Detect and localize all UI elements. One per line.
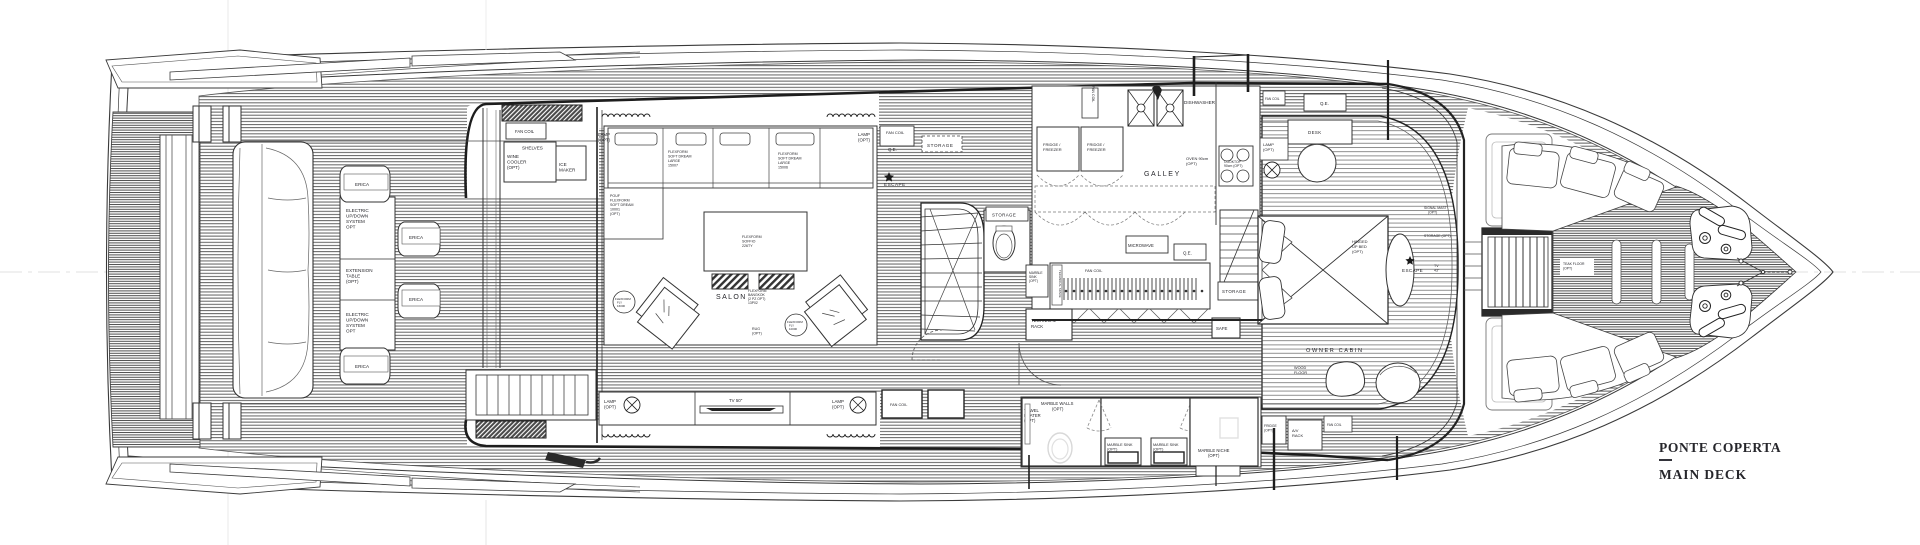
svg-text:TECHNICAL SPACE: TECHNICAL SPACE [1058,270,1062,298]
svg-text:ICE: ICE [559,162,567,167]
svg-text:FAN COIL: FAN COIL [890,403,907,407]
svg-text:16000: 16000 [617,304,625,308]
svg-text:FREEZER: FREEZER [1043,147,1062,152]
svg-text:Q.E.: Q.E. [888,147,897,152]
svg-text:UP/DOWN: UP/DOWN [346,214,368,219]
svg-text:TABLE: TABLE [346,274,360,279]
svg-text:FAN COIL: FAN COIL [1327,423,1342,427]
svg-text:MAIN DECK: MAIN DECK [1659,467,1747,482]
svg-text:(OPT): (OPT) [858,138,870,143]
svg-text:FRIDGE: FRIDGE [1264,424,1278,428]
svg-text:LAMP: LAMP [604,399,616,404]
svg-text:RUG: RUG [752,327,760,331]
svg-text:MAKER: MAKER [559,168,576,173]
svg-text:LARGE: LARGE [778,161,791,165]
svg-text:Q.E.: Q.E. [1320,101,1329,106]
svg-text:SOFT DREAM: SOFT DREAM [668,155,692,159]
svg-text:TEAK FLOOR: TEAK FLOOR [1563,262,1585,266]
svg-text:LARGE: LARGE [668,159,681,163]
svg-text:(OPT): (OPT) [1029,279,1038,283]
svg-text:43": 43" [1434,269,1440,273]
svg-text:15006: 15006 [778,166,788,170]
svg-text:LAMP: LAMP [832,399,844,404]
svg-text:90cm (OPT): 90cm (OPT) [1224,164,1242,168]
svg-text:(OPT): (OPT) [507,165,520,170]
svg-text:SHELVES: SHELVES [522,146,543,151]
svg-text:SYSTEM: SYSTEM [346,219,365,224]
svg-text:SALON: SALON [716,294,747,301]
svg-text:10000: 10000 [789,327,797,331]
svg-text:ERICA: ERICA [409,297,424,302]
svg-text:(OPT): (OPT) [598,138,610,143]
svg-text:SIGNAL MAST: SIGNAL MAST [1424,206,1447,210]
svg-text:WINE: WINE [507,154,519,159]
svg-text:(OPT): (OPT) [832,405,844,410]
svg-text:ELECTRIC: ELECTRIC [346,208,369,213]
svg-text:ELECTRIC: ELECTRIC [346,312,369,317]
svg-text:FLEXFORM: FLEXFORM [778,152,798,156]
svg-text:(OPT): (OPT) [1052,407,1064,412]
svg-text:FLEXFORM: FLEXFORM [742,235,762,239]
svg-text:(OPT): (OPT) [1208,453,1220,458]
svg-text:DESK: DESK [1308,130,1322,135]
svg-text:(OPT): (OPT) [752,332,762,336]
svg-text:LAMP: LAMP [858,132,870,137]
svg-text:13P02: 13P02 [748,301,758,305]
svg-text:POUF: POUF [610,194,621,198]
svg-text:(OPT): (OPT) [1352,249,1364,254]
svg-text:FREEZER: FREEZER [1087,147,1106,152]
svg-text:FLOOR: FLOOR [1294,371,1307,375]
svg-text:LAMP: LAMP [598,132,610,137]
svg-text:SOFT DREAM: SOFT DREAM [778,157,802,161]
svg-text:STORAGE (OPT): STORAGE (OPT) [1424,234,1451,238]
svg-text:GALLEY: GALLEY [1144,171,1181,178]
svg-text:OPT: OPT [346,329,356,334]
svg-text:OPT: OPT [346,225,356,230]
svg-text:(OPT): (OPT) [1263,147,1275,152]
svg-text:COOLER: COOLER [507,160,527,165]
svg-text:STORAGE: STORAGE [927,143,954,148]
svg-text:226TY: 226TY [742,244,753,248]
svg-text:MARBLE SINK: MARBLE SINK [1153,443,1179,447]
svg-text:PONTE COPERTA: PONTE COPERTA [1659,440,1781,455]
svg-text:SYSTEM: SYSTEM [346,323,365,328]
svg-text:UP/DOWN: UP/DOWN [346,318,368,323]
svg-text:FAN COIL: FAN COIL [1091,86,1095,102]
svg-text:FLEXFORM: FLEXFORM [610,199,630,203]
svg-text:(OPT): (OPT) [1563,267,1572,271]
svg-text:ESCAPE: ESCAPE [884,182,906,187]
svg-text:(OPT): (OPT) [610,212,620,216]
svg-text:MARBLE SINK: MARBLE SINK [1107,443,1133,447]
svg-text:TV 50": TV 50" [729,398,743,403]
svg-text:TV: TV [1434,264,1439,268]
svg-text:(OPT): (OPT) [1428,211,1437,215]
svg-text:(OPT): (OPT) [346,279,359,284]
svg-text:(OPT): (OPT) [1107,448,1118,452]
svg-text:FAN COIL: FAN COIL [886,130,905,135]
svg-text:STORAGE: STORAGE [992,213,1016,218]
svg-text:DISHWASHER: DISHWASHER [1184,100,1216,105]
svg-text:EXTENSION: EXTENSION [346,268,373,273]
svg-text:SOFT DREAM: SOFT DREAM [610,203,634,207]
svg-text:(OPT): (OPT) [1264,429,1273,433]
svg-text:ERICA: ERICA [355,182,370,187]
svg-text:Q.E.: Q.E. [1183,251,1192,256]
svg-text:WOOD: WOOD [1294,366,1306,370]
svg-text:15007: 15007 [668,164,678,168]
svg-text:ERICA: ERICA [409,235,424,240]
svg-text:MICROWAVE: MICROWAVE [1128,243,1154,248]
svg-text:OWNER CABIN: OWNER CABIN [1306,348,1364,354]
svg-text:ESCAPE: ESCAPE [1402,268,1423,273]
svg-text:FAN COIL: FAN COIL [1265,97,1280,101]
svg-text:10001: 10001 [610,208,620,212]
svg-text:RACK: RACK [1031,324,1043,329]
svg-text:FAN COIL: FAN COIL [515,129,535,134]
svg-text:(OPT): (OPT) [1186,161,1198,166]
svg-text:ERICA: ERICA [355,364,370,369]
svg-text:(OPT): (OPT) [604,405,616,410]
svg-text:FAN COIL: FAN COIL [1085,269,1102,273]
svg-text:MARBLE WALLS: MARBLE WALLS [1041,401,1074,406]
svg-text:RACK: RACK [1292,433,1303,438]
svg-text:FLEXFORM: FLEXFORM [668,150,688,154]
svg-text:SOFFIO: SOFFIO [742,240,756,244]
svg-text:STORAGE: STORAGE [1222,289,1246,294]
svg-text:(OPT): (OPT) [1153,448,1164,452]
svg-text:SAFE: SAFE [1216,326,1228,331]
